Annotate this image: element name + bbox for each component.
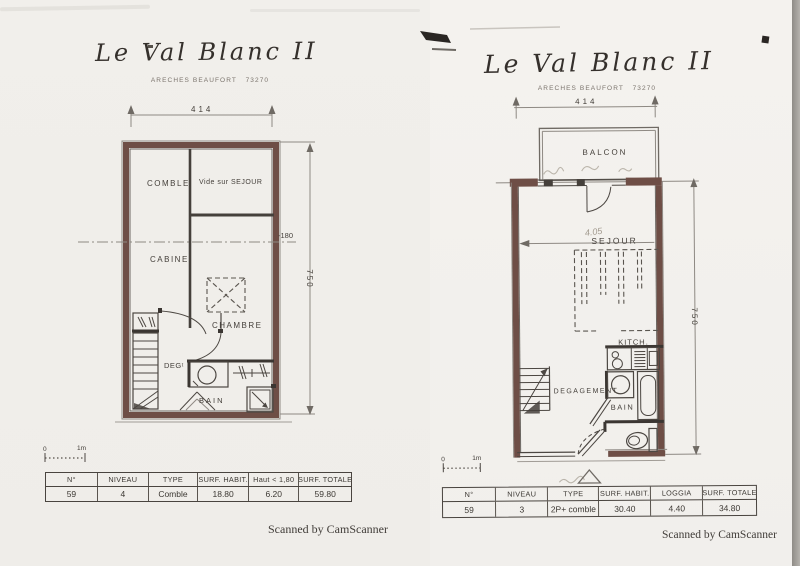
col-header-loggia: LOGGIA (651, 486, 703, 499)
cell-niveau: 3 (496, 501, 548, 516)
scan-artifacts (420, 27, 769, 50)
cell-numero: 59 (443, 502, 496, 517)
height-marker-label: -180 (278, 231, 293, 240)
attic-projection-dashed (574, 249, 659, 331)
camscanner-watermark: Scanned by CamScanner (268, 522, 388, 537)
roof-window (207, 278, 245, 312)
floor-plan-left: 414 750 -180 (43, 45, 315, 462)
stairs-left (132, 313, 159, 409)
scale-1m-label: 1m (77, 445, 86, 452)
dimension-width-right: 414 (513, 95, 659, 118)
camscanner-watermark: Scanned by CamScanner (662, 529, 777, 541)
table-data-row: 59 3 2P+ comble 30.40 4.40 34.80 (443, 500, 756, 517)
room-label-bain: BAIN (199, 396, 225, 405)
col-header-numero: N° (46, 473, 98, 486)
scan-speck (148, 45, 153, 48)
table-data-row: 59 4 Comble 18.80 6.20 59.80 (46, 487, 351, 501)
handwritten-scribbles (544, 166, 635, 483)
summary-table-right: N° NIVEAU TYPE SURF. HABIT. LOGGIA SURF.… (442, 485, 757, 518)
col-header-niveau: NIVEAU (98, 473, 149, 486)
room-label-cabine: CABINE (150, 255, 189, 264)
room-label-balcon: BALCON (582, 148, 627, 157)
room-label-sejour: SEJOUR (591, 236, 638, 246)
room-label-degagement: DEGᵗ (164, 361, 184, 370)
scale-zero-label: 0 (441, 456, 445, 463)
dimension-height-right: 750 (663, 178, 701, 455)
col-header-type: TYPE (548, 487, 599, 500)
scale-1m-label: 1m (472, 455, 481, 462)
room-label-bain: BAIN (611, 403, 635, 412)
col-header-type: TYPE (149, 473, 198, 486)
scale-zero-label: 0 (43, 446, 47, 453)
wc (605, 421, 664, 452)
stairs-right (519, 366, 549, 413)
height-marker-line: -180 (78, 231, 296, 242)
kitchen-unit: KITCH. (605, 337, 663, 370)
dimension-height-left: 750 (280, 142, 315, 415)
room-label-comble: COMBLE (147, 179, 190, 188)
cell-surf-totale: 34.80 (703, 500, 756, 515)
scanned-document: Le Val Blanc II ARECHES BEAUFORT 73270 L… (0, 0, 800, 566)
cell-loggia: 4.40 (651, 500, 703, 515)
cell-type: 2P+ comble (548, 501, 599, 516)
dim-width-label: 414 (191, 105, 213, 114)
col-header-surf-habit: SURF. HABIT. (198, 473, 249, 486)
entry-door-right (578, 429, 605, 456)
table-header-row: N° NIVEAU TYPE SURF. HABIT. Haut < 1,80 … (46, 473, 351, 487)
cell-niveau: 4 (98, 487, 149, 501)
summary-table-left: N° NIVEAU TYPE SURF. HABIT. Haut < 1,80 … (45, 472, 352, 502)
cell-numero: 59 (46, 487, 98, 501)
col-header-niveau: NIVEAU (496, 487, 548, 500)
col-header-surf-habit: SURF. HABIT. (599, 487, 651, 500)
dimension-width-left: 414 (128, 105, 276, 127)
cell-surf-habit: 30.40 (599, 501, 651, 516)
dim-width-label: 414 (575, 97, 597, 106)
bathroom-right: BAIN (589, 370, 658, 426)
dim-height-label: 750 (690, 307, 699, 326)
balcony: BALCON (539, 127, 658, 180)
cell-surf-totale: 59.80 (299, 487, 351, 501)
room-label-degagement: DEGAGEMENT (554, 388, 619, 396)
dim-height-label: 750 (305, 269, 314, 288)
partitions-left (190, 149, 274, 333)
cell-haut: 6.20 (249, 487, 299, 501)
cell-surf-habit: 18.80 (198, 487, 249, 501)
col-header-surf-totale: SURF. TOTALE (703, 486, 756, 499)
col-header-haut: Haut < 1,80 (249, 473, 299, 486)
col-header-surf-totale: SURF. TOTALE (299, 473, 351, 486)
room-label-chambre: CHAMBRE (212, 321, 263, 330)
col-header-numero: N° (443, 488, 496, 501)
scale-bar-left: 0 1m (43, 445, 86, 462)
top-wall-right (496, 177, 699, 213)
floor-plan-right: 414 BALCON (438, 95, 701, 484)
cell-type: Comble (149, 487, 198, 501)
room-label-vide-sur-sejour: Vide sur SEJOUR (199, 179, 262, 186)
scale-bar-right: 0 1m (441, 455, 481, 472)
